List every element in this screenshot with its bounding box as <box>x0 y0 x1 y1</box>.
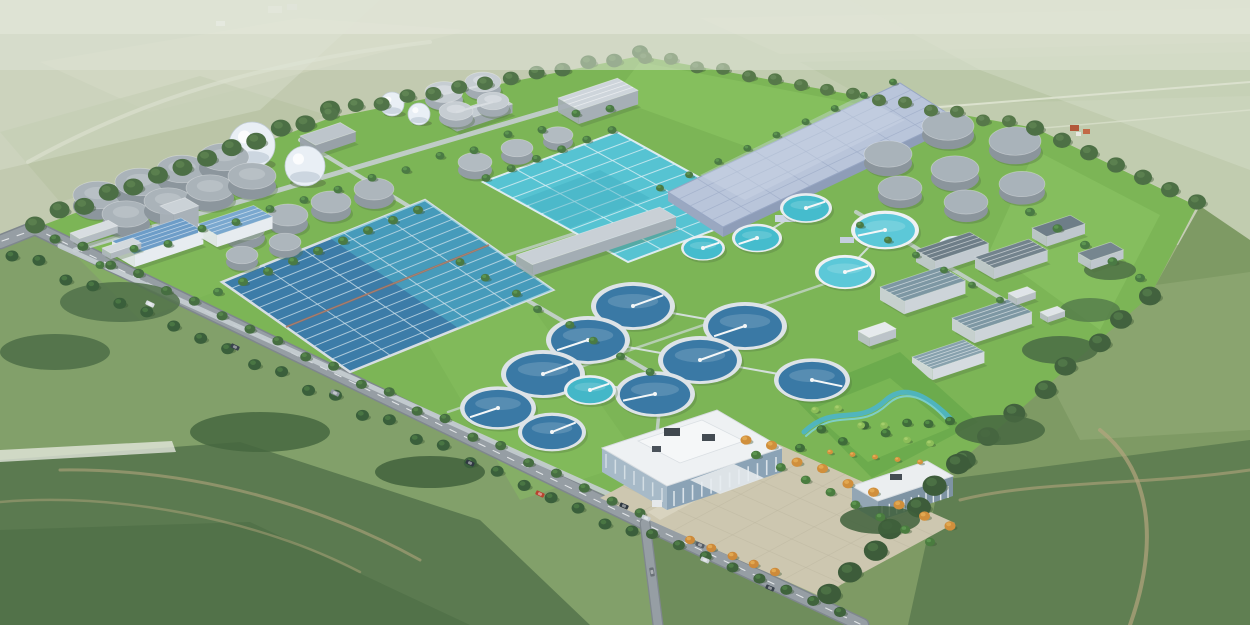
covered-tank <box>501 139 533 157</box>
ornamental-trees <box>728 552 738 561</box>
avenue-trees <box>802 118 810 125</box>
road-trees <box>497 442 502 446</box>
avenue-trees <box>941 267 945 270</box>
road-trees <box>245 324 256 333</box>
road-trees <box>627 527 633 532</box>
road-trees <box>493 467 499 472</box>
covered-tank <box>543 127 573 144</box>
clarifier <box>883 228 887 232</box>
avenue-trees <box>504 130 513 138</box>
avenue-trees <box>403 167 407 170</box>
avenue-trees <box>130 245 139 253</box>
hedgerow <box>225 141 234 148</box>
avenue-trees <box>997 297 1001 300</box>
avenue-trees <box>199 226 203 229</box>
hedgerow <box>503 72 519 86</box>
hedgerow <box>821 586 832 594</box>
hedgerow <box>924 105 938 117</box>
avenue-trees <box>608 126 617 134</box>
clarifier <box>631 304 635 308</box>
hedgerow <box>28 219 37 226</box>
hedgerow <box>77 200 86 207</box>
avenue-trees <box>885 237 889 240</box>
avenue-trees <box>482 174 491 182</box>
farmhouse-roof <box>1070 125 1079 131</box>
road-trees <box>469 434 474 438</box>
plaza-trees <box>777 464 782 468</box>
plaza-trees <box>852 501 857 505</box>
avenue-trees <box>165 241 169 244</box>
tree-clump <box>190 412 330 452</box>
flower-bushes <box>872 454 878 459</box>
avenue-trees <box>505 131 509 134</box>
hedgerow <box>770 75 776 80</box>
hedgerow <box>454 82 461 88</box>
avenue-trees <box>533 156 537 159</box>
plaza-trees <box>826 488 836 497</box>
ornamental-trees <box>945 521 956 530</box>
avenue-trees <box>584 137 588 140</box>
avenue-trees <box>131 246 135 249</box>
wetland-bushes <box>903 436 911 443</box>
wetland-bushes <box>904 420 909 424</box>
road-trees <box>491 466 504 477</box>
hedgerow <box>796 80 802 85</box>
road-trees <box>223 344 229 349</box>
avenue-trees <box>609 127 613 130</box>
hedgerow <box>295 115 315 132</box>
wetland-bushes <box>838 437 848 446</box>
avenue-trees <box>334 186 343 194</box>
tree-clump <box>0 334 110 370</box>
avenue-trees <box>589 337 598 345</box>
hedgerow <box>867 543 878 551</box>
avenue-trees <box>857 222 861 225</box>
road-trees <box>34 256 40 261</box>
hedgerow <box>898 97 912 109</box>
clarifier <box>804 206 808 210</box>
road-trees <box>358 381 363 385</box>
avenue-trees <box>368 174 377 182</box>
wetland-bushes <box>904 437 908 440</box>
avenue-trees <box>301 197 305 200</box>
road-trees <box>384 387 395 396</box>
avenue-trees <box>534 306 538 309</box>
road-trees <box>217 311 228 320</box>
hedgerow <box>742 70 756 82</box>
road-trees <box>161 286 172 295</box>
road-trees <box>328 361 339 370</box>
scene-canvas <box>0 0 1250 625</box>
hedgerow <box>900 98 906 103</box>
road-trees <box>77 242 88 251</box>
hedgerow <box>1083 147 1091 153</box>
farmhouse-roof <box>1083 129 1090 134</box>
hedgerow <box>923 475 947 495</box>
covered-tank <box>226 246 258 264</box>
hedgerow <box>376 99 383 105</box>
hedgerow <box>400 89 416 103</box>
hedgerow <box>151 169 160 176</box>
avenue-trees <box>315 248 320 252</box>
plaza-trees <box>902 526 907 530</box>
avenue-trees <box>861 93 865 96</box>
clarifier <box>810 378 814 382</box>
road-trees <box>246 325 251 329</box>
avenue-trees <box>1027 209 1032 213</box>
ornamental-trees <box>870 489 875 493</box>
avenue-trees <box>482 275 486 278</box>
hedgerow <box>1058 359 1068 367</box>
road-trees <box>782 586 787 590</box>
avenue-trees <box>512 290 521 298</box>
plaza-trees <box>802 477 807 481</box>
road-trees <box>196 334 202 339</box>
hedgerow <box>874 96 880 101</box>
road-trees <box>190 298 195 302</box>
plaza-trees <box>877 514 882 518</box>
avenue-trees <box>513 291 517 294</box>
road-trees <box>275 366 288 377</box>
road-trees <box>648 530 653 534</box>
road-trees <box>358 411 364 416</box>
plaza-trees <box>753 452 758 456</box>
avenue-trees <box>1109 258 1114 262</box>
road-trees <box>495 441 506 450</box>
hedgerow <box>872 94 886 106</box>
road-trees <box>385 416 391 421</box>
hedgerow <box>99 184 119 201</box>
road-trees <box>553 470 558 474</box>
hedgerow <box>322 107 338 121</box>
gas-holder-sphere <box>290 171 320 182</box>
avenue-trees <box>647 369 651 372</box>
clarifier <box>698 358 702 362</box>
wetland-bushes <box>926 440 934 447</box>
ornamental-trees <box>844 480 849 484</box>
ornamental-trees <box>750 561 755 565</box>
ornamental-trees <box>742 436 747 440</box>
avenue-trees <box>940 267 948 274</box>
farmhouse <box>1076 132 1081 136</box>
plaza-trees <box>925 538 935 547</box>
road-trees <box>608 498 613 502</box>
ornamental-trees <box>919 511 930 520</box>
avenue-trees <box>657 185 661 188</box>
avenue-trees <box>567 322 571 325</box>
hedgerow <box>477 76 493 90</box>
hedgerow <box>123 179 143 196</box>
covered-tank <box>269 233 301 251</box>
road-trees <box>274 337 279 341</box>
hedgerow <box>1142 289 1152 297</box>
hedgerow <box>1161 182 1179 197</box>
road-trees <box>142 308 148 313</box>
avenue-trees <box>533 305 542 313</box>
road-trees <box>304 386 310 391</box>
hedgerow <box>53 203 62 210</box>
road-trees <box>59 275 72 286</box>
avenue-trees <box>572 110 581 118</box>
avenue-trees <box>456 258 465 266</box>
covered-tank <box>878 176 922 200</box>
road-trees <box>836 608 841 612</box>
hedgerow <box>374 97 390 111</box>
road-trees <box>580 484 585 488</box>
covered-tank <box>864 141 912 167</box>
wetland-bushes <box>795 444 805 453</box>
ornamental-trees <box>817 464 828 473</box>
plaza-trees <box>850 500 860 509</box>
avenue-trees <box>97 262 101 265</box>
hedgerow <box>148 167 168 184</box>
road-trees <box>169 322 175 327</box>
gas-holder-sphere <box>293 153 304 164</box>
wetland-bushes <box>839 438 844 442</box>
wetland-bushes <box>881 429 891 438</box>
avenue-trees <box>557 145 566 153</box>
aerial-rendering-wastewater-plant <box>0 0 1250 625</box>
road-trees <box>599 518 612 529</box>
hedgerow <box>1107 157 1125 172</box>
road-trees <box>636 509 641 513</box>
avenue-trees <box>968 282 976 289</box>
hedgerow <box>102 186 111 193</box>
avenue-trees <box>300 196 309 204</box>
avenue-trees <box>198 225 207 233</box>
covered-tank <box>944 190 988 214</box>
rooftop-unit <box>890 474 902 480</box>
flower-bushes <box>850 453 853 455</box>
hedgerow <box>926 106 932 111</box>
covered-tank <box>931 156 979 182</box>
road-trees <box>834 607 846 617</box>
hedgerow <box>1080 145 1098 160</box>
road-trees <box>50 234 61 243</box>
wetland-bushes <box>811 407 819 414</box>
hedgerow <box>428 89 435 95</box>
road-trees <box>574 504 580 509</box>
flower-bushes <box>917 459 923 464</box>
road-trees <box>518 480 531 491</box>
hedgerow <box>350 100 357 106</box>
avenue-trees <box>646 368 655 376</box>
road-trees <box>572 503 585 514</box>
avenue-trees <box>1137 275 1142 279</box>
avenue-trees <box>1135 274 1145 283</box>
hedgerow <box>50 201 70 218</box>
digester-tank <box>113 206 139 218</box>
avenue-trees <box>471 147 475 150</box>
plaza-trees <box>776 463 786 472</box>
road-trees <box>755 575 760 579</box>
avenue-trees <box>685 171 693 178</box>
road-trees <box>356 380 367 389</box>
flower-bushes <box>850 452 856 457</box>
road-trees <box>807 596 819 606</box>
wetland-bushes <box>858 423 862 426</box>
ornamental-trees <box>706 544 716 553</box>
ornamental-trees <box>729 553 734 557</box>
avenue-trees <box>388 216 398 225</box>
road-trees <box>626 525 639 536</box>
hedgerow <box>197 150 217 167</box>
hedgerow <box>222 139 242 156</box>
hedgerow <box>820 84 834 96</box>
avenue-trees <box>743 145 751 152</box>
avenue-trees <box>413 206 423 215</box>
avenue-trees <box>1080 241 1090 250</box>
hedgerow <box>271 120 291 137</box>
hedgerow <box>926 478 937 486</box>
avenue-trees <box>565 321 574 329</box>
avenue-trees <box>290 258 295 262</box>
hedgerow <box>274 122 283 129</box>
hedgerow <box>1110 310 1132 329</box>
hedgerow <box>1054 357 1076 376</box>
avenue-trees <box>232 218 241 226</box>
road-trees <box>135 270 140 274</box>
hedgerow <box>249 135 258 142</box>
road-trees <box>189 296 200 305</box>
avenue-trees <box>238 278 248 287</box>
road-trees <box>6 250 19 261</box>
road-trees <box>32 255 45 266</box>
covered-tank <box>458 153 492 172</box>
road-trees <box>780 585 792 595</box>
tree-clump <box>955 415 1045 445</box>
hedgerow <box>952 107 958 112</box>
avenue-trees <box>96 261 105 269</box>
hedgerow <box>950 456 961 464</box>
road-trees <box>330 363 335 367</box>
wetland-bushes <box>902 419 912 428</box>
avenue-trees <box>889 79 897 86</box>
road-trees <box>140 306 153 317</box>
hedgerow <box>176 161 185 168</box>
hedgerow <box>768 73 782 85</box>
hedgerow <box>1134 170 1152 185</box>
road-trees <box>410 434 423 445</box>
wetland-bushes <box>881 423 885 426</box>
plaza-trees <box>827 489 832 493</box>
hedgerow <box>1188 194 1206 209</box>
avenue-trees <box>402 166 411 174</box>
road-trees <box>7 252 13 257</box>
avenue-trees <box>913 252 917 255</box>
road-trees <box>107 262 112 266</box>
hedgerow <box>1056 134 1064 140</box>
hedgerow <box>348 98 364 112</box>
avenue-trees <box>582 136 591 144</box>
road-trees <box>520 481 526 486</box>
hedgerow <box>1092 336 1102 344</box>
avenue-trees <box>338 237 348 246</box>
road-trees <box>277 367 283 372</box>
avenue-trees <box>996 297 1004 304</box>
ornamental-trees <box>687 537 692 541</box>
clarifier <box>653 392 657 396</box>
hedgerow <box>1137 171 1145 177</box>
hedgerow <box>848 89 854 94</box>
hedgerow <box>74 198 94 215</box>
ornamental-trees <box>749 560 759 569</box>
road-trees <box>600 520 606 525</box>
avenue-trees <box>1054 225 1059 229</box>
avenue-trees <box>263 267 273 276</box>
avenue-trees <box>390 217 395 221</box>
hedgerow <box>505 73 512 79</box>
ornamental-trees <box>766 441 777 450</box>
road-trees <box>523 458 534 467</box>
plaza-trees <box>900 525 910 534</box>
rooftop-unit <box>664 428 680 436</box>
rooftop-unit <box>652 446 661 452</box>
hedgerow <box>1191 196 1199 202</box>
hedgerow <box>298 117 307 124</box>
avenue-trees <box>912 252 920 259</box>
clarifier <box>843 270 847 274</box>
road-trees <box>302 385 315 396</box>
ornamental-trees <box>772 569 777 573</box>
avenue-trees <box>340 238 345 242</box>
hedgerow <box>1035 380 1057 399</box>
hedgerow <box>842 565 853 573</box>
avenue-trees <box>363 226 373 235</box>
avenue-trees <box>266 205 275 213</box>
hedgerow <box>1113 312 1123 320</box>
hedgerow <box>402 91 409 97</box>
road-trees <box>439 441 445 446</box>
avenue-trees <box>313 247 323 256</box>
wetland-bushes <box>927 441 931 444</box>
avenue-trees <box>538 126 547 134</box>
wetland-bushes <box>797 445 802 449</box>
hedgerow <box>1164 184 1172 190</box>
road-trees <box>79 243 84 247</box>
avenue-trees <box>890 79 894 82</box>
covered-tank <box>311 191 351 213</box>
road-trees <box>727 562 739 572</box>
hedgerow <box>1026 120 1044 135</box>
flower-bushes <box>827 449 833 454</box>
road-trees <box>51 235 56 239</box>
hedgerow <box>744 72 750 77</box>
wetland-bushes <box>818 426 823 430</box>
hedgerow <box>25 217 45 234</box>
avenue-trees <box>1025 208 1035 217</box>
avenue-trees <box>1108 257 1118 266</box>
road-trees <box>300 352 311 361</box>
clarifier <box>588 388 592 392</box>
avenue-trees <box>969 282 973 285</box>
road-trees <box>163 287 168 291</box>
road-trees <box>673 540 685 550</box>
avenue-trees <box>508 165 512 168</box>
gas-holder-sphere <box>411 117 428 123</box>
hedgerow <box>451 80 467 94</box>
hedgerow <box>1038 383 1048 391</box>
hedgerow <box>425 87 441 101</box>
road-trees <box>113 298 126 309</box>
clarifier <box>743 324 747 328</box>
road-trees <box>218 312 223 316</box>
hedgerow <box>246 133 266 150</box>
avenue-trees <box>436 152 445 160</box>
road-trees <box>385 388 390 392</box>
hedgerow <box>479 78 486 84</box>
digester-tank <box>239 168 265 180</box>
